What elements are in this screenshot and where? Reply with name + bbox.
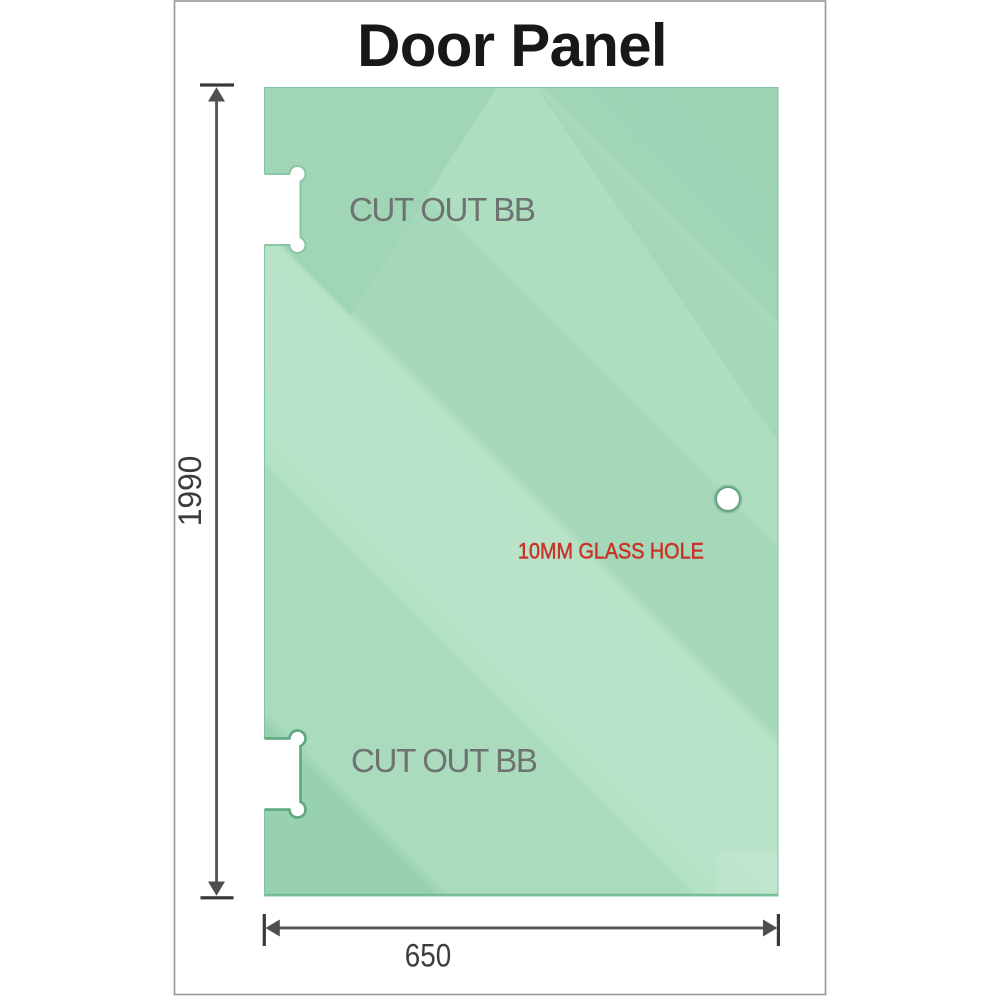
svg-text:650: 650: [405, 939, 451, 974]
svg-text:CUT OUT BB: CUT OUT BB: [351, 742, 537, 779]
svg-text:Door Panel: Door Panel: [357, 12, 667, 79]
svg-text:10MM GLASS HOLE: 10MM GLASS HOLE: [518, 540, 704, 564]
svg-text:1990: 1990: [172, 456, 208, 526]
svg-text:CUT OUT BB: CUT OUT BB: [349, 191, 535, 228]
